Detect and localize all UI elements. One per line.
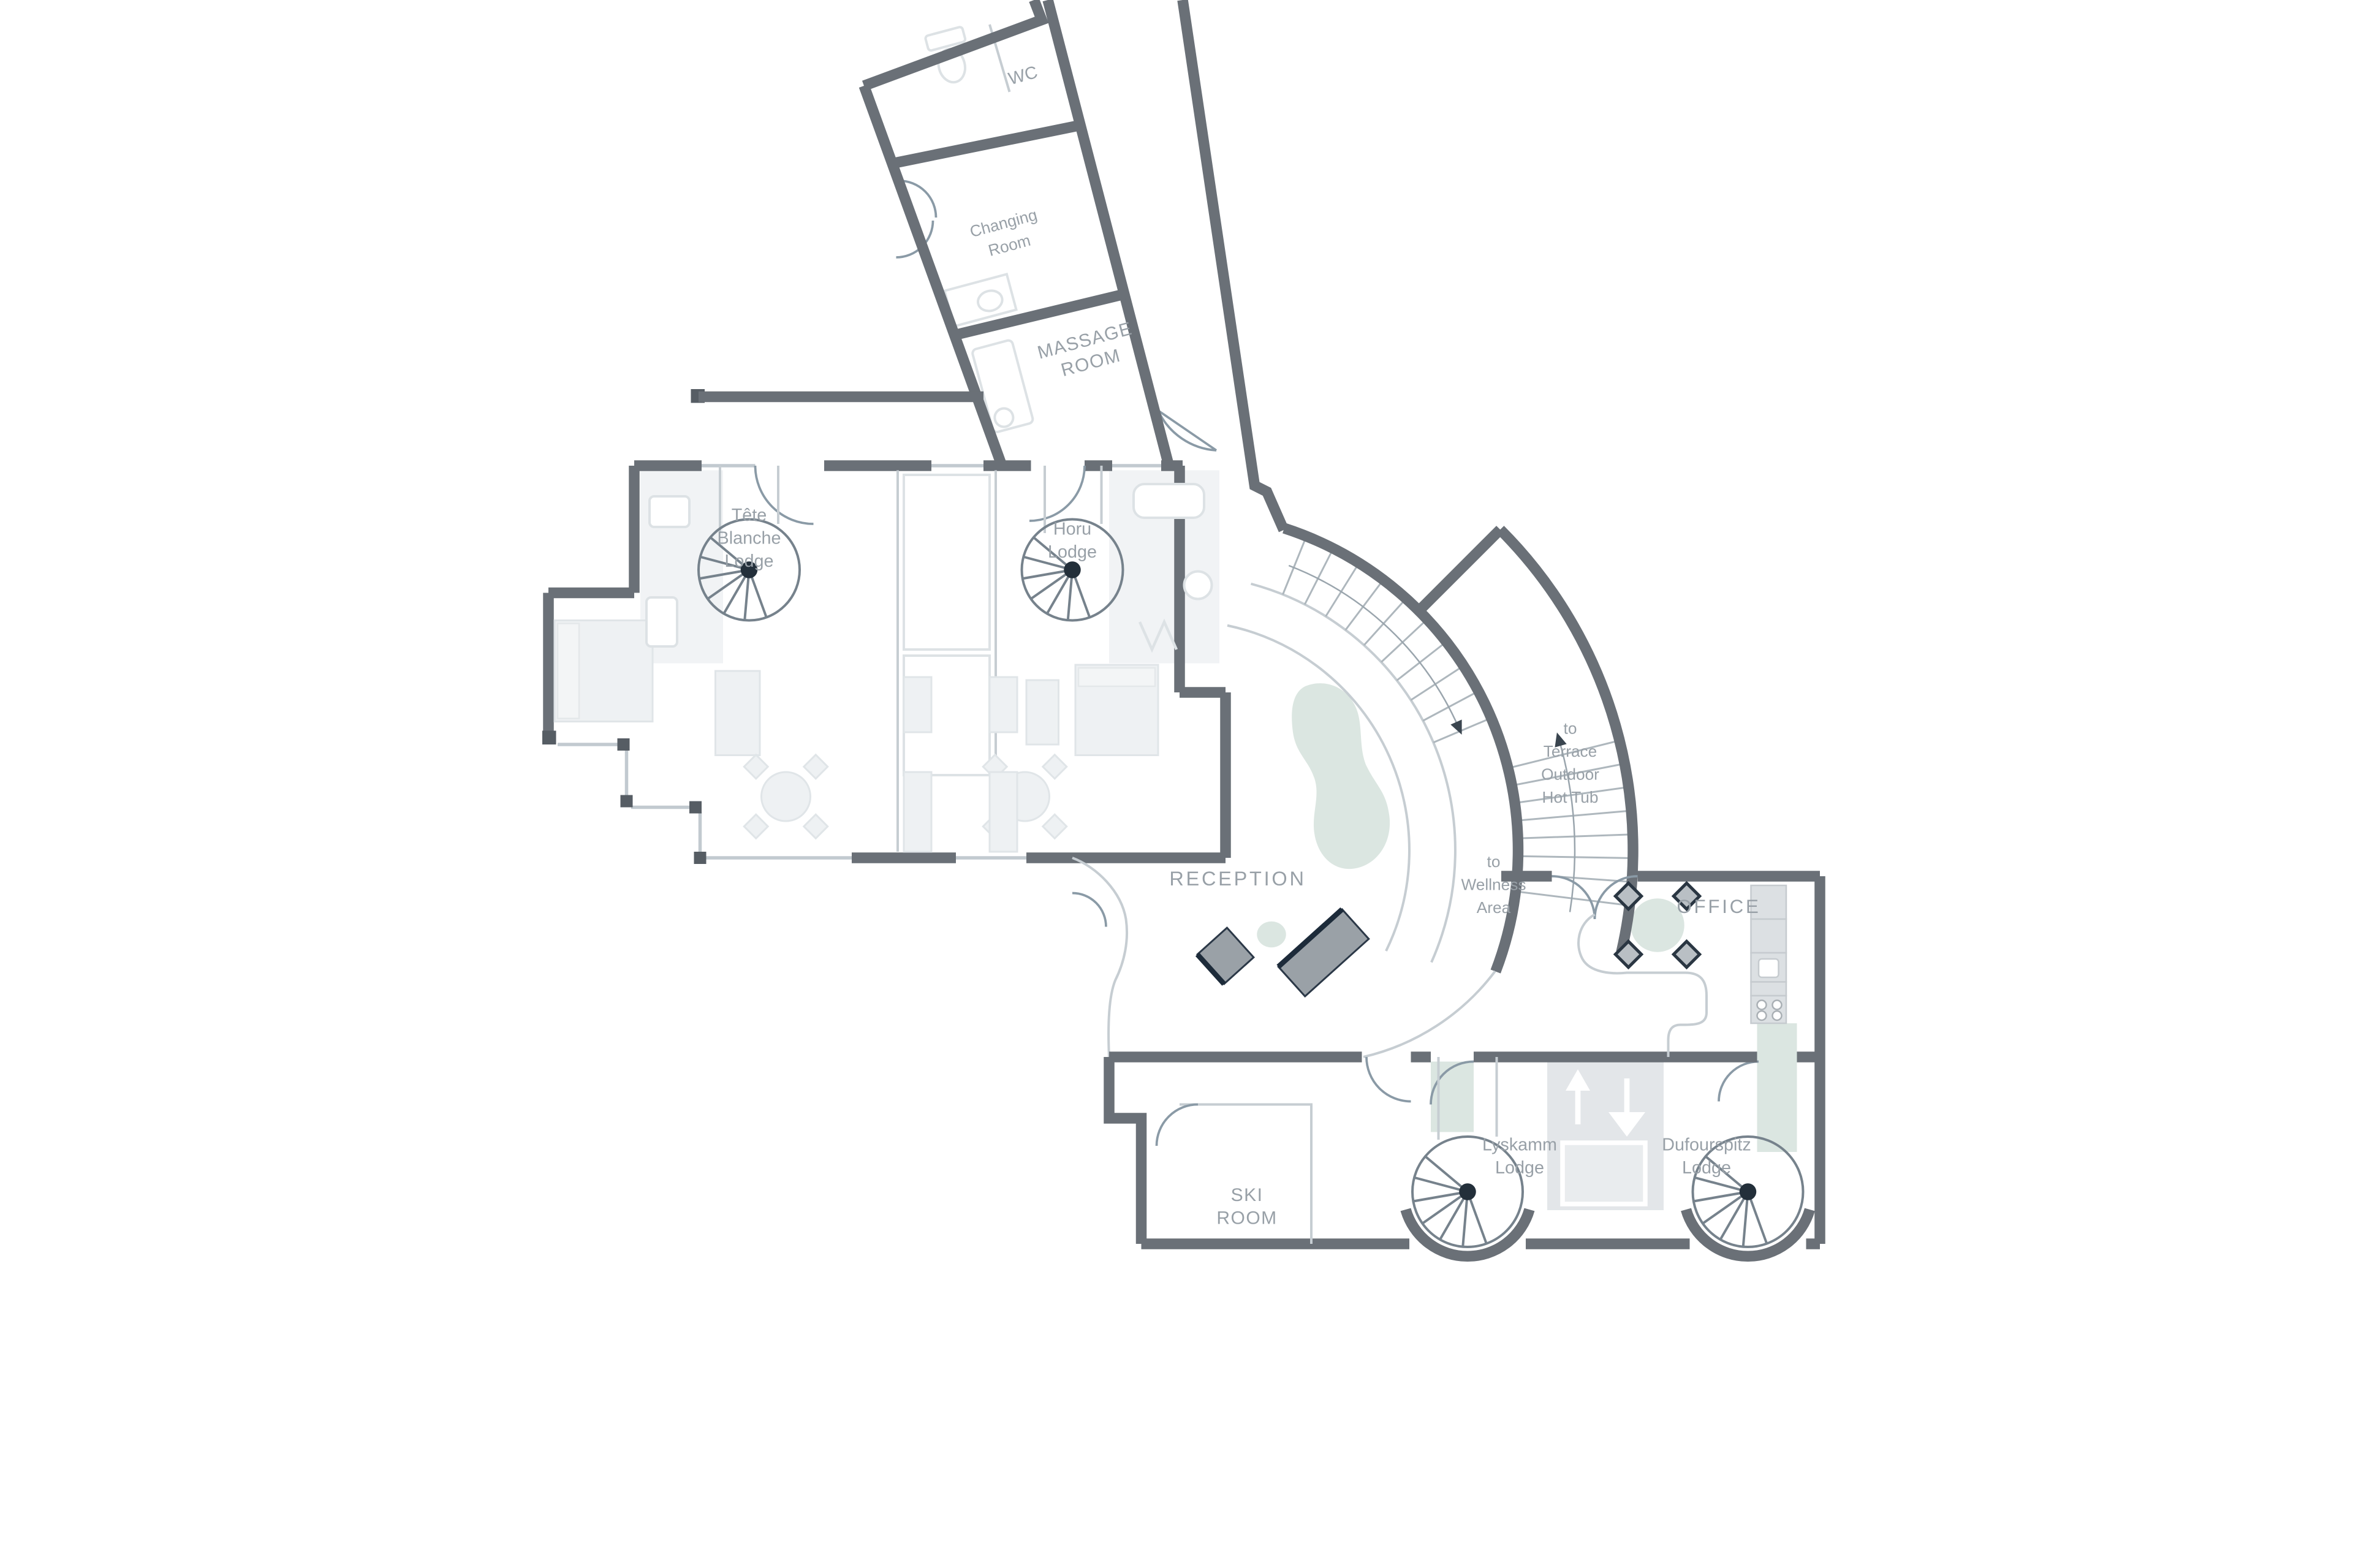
bathtub-icon: [1134, 484, 1204, 518]
svg-text:Outdoor: Outdoor: [1541, 765, 1599, 784]
door-arc: [1029, 466, 1085, 521]
svg-text:Hot Tub: Hot Tub: [1542, 788, 1599, 806]
bath-fixture: [646, 597, 677, 646]
reception-desk: [1197, 909, 1369, 996]
door-arc: [1157, 1105, 1199, 1146]
dining-table: [762, 772, 811, 821]
svg-text:Lodge: Lodge: [1495, 1158, 1544, 1178]
elevator: [1547, 1057, 1664, 1210]
room-label-massage-room: MASSAGE ROOM: [1036, 319, 1141, 385]
room-label-reception: RECEPTION: [1169, 868, 1306, 890]
svg-text:ROOM: ROOM: [1216, 1208, 1277, 1229]
svg-text:Dufourspitz: Dufourspitz: [1662, 1135, 1751, 1155]
svg-text:Lodge: Lodge: [1048, 542, 1097, 562]
svg-text:to: to: [1564, 719, 1577, 738]
curved-bump-wall: [1686, 1210, 1810, 1256]
room-label-office: OFFICE: [1677, 896, 1760, 917]
interior-wall: [890, 126, 1079, 164]
annotation-to-terrace-hot-tub: to Terrace Outdoor Hot Tub: [1541, 719, 1599, 807]
svg-text:SKI: SKI: [1231, 1185, 1264, 1205]
vestibule-wall: [1072, 858, 1127, 1057]
door-arc: [1366, 1057, 1411, 1102]
spa-wing: [864, 0, 1284, 530]
svg-text:Tête: Tête: [732, 506, 767, 525]
room-label-wc: WC: [1006, 62, 1040, 89]
svg-text:Lodge: Lodge: [1682, 1158, 1731, 1178]
svg-text:Lyskamm: Lyskamm: [1482, 1135, 1557, 1155]
shared-bath: [904, 475, 990, 650]
room-label-lyskamm-lodge: Lyskamm Lodge: [1482, 1135, 1557, 1178]
svg-text:Terrace: Terrace: [1544, 742, 1597, 760]
pond-shape: [1292, 683, 1390, 869]
interior-wall: [1048, 0, 1169, 466]
svg-text:Horu: Horu: [1053, 520, 1091, 539]
elevator-car: [1563, 1143, 1645, 1204]
svg-text:Wellness: Wellness: [1461, 876, 1526, 894]
svg-text:Area: Area: [1477, 898, 1511, 917]
room-label-tete-blanche-lodge: Tête Blanche Lodge: [718, 506, 781, 571]
curved-bump-wall: [1406, 1210, 1529, 1256]
entrance-glass-arc: [1363, 971, 1495, 1057]
room-label-changing-room: Changing Room: [968, 205, 1045, 263]
room-label-ski-room: SKI ROOM: [1216, 1185, 1277, 1229]
facade-posts: [618, 738, 707, 864]
svg-text:Blanche: Blanche: [718, 529, 781, 548]
svg-text:to: to: [1487, 852, 1501, 871]
bed-pillow: [1078, 668, 1155, 686]
floor-plan: WC Changing Room MASSAGE ROOM Tête Blanc…: [0, 0, 2353, 1568]
bed-pillow: [558, 624, 579, 719]
reception-plant: [1257, 922, 1286, 948]
stair-wall: [1419, 529, 1501, 611]
door-arc: [1072, 893, 1106, 927]
dufourspitz-entry-strip: [1757, 1023, 1797, 1152]
wall-cap: [542, 731, 556, 745]
bath-fixture: [650, 496, 689, 527]
door-arc: [1719, 1062, 1759, 1102]
exterior-wall: [1183, 0, 1284, 530]
room-label-horu-lodge: Horu Lodge: [1048, 520, 1097, 562]
sofa: [716, 671, 760, 756]
sofa: [1026, 680, 1059, 744]
sink-icon: [1759, 959, 1779, 977]
sink-icon: [1184, 572, 1212, 599]
svg-text:Lodge: Lodge: [725, 551, 774, 571]
exterior-wall: [1109, 1057, 1142, 1244]
